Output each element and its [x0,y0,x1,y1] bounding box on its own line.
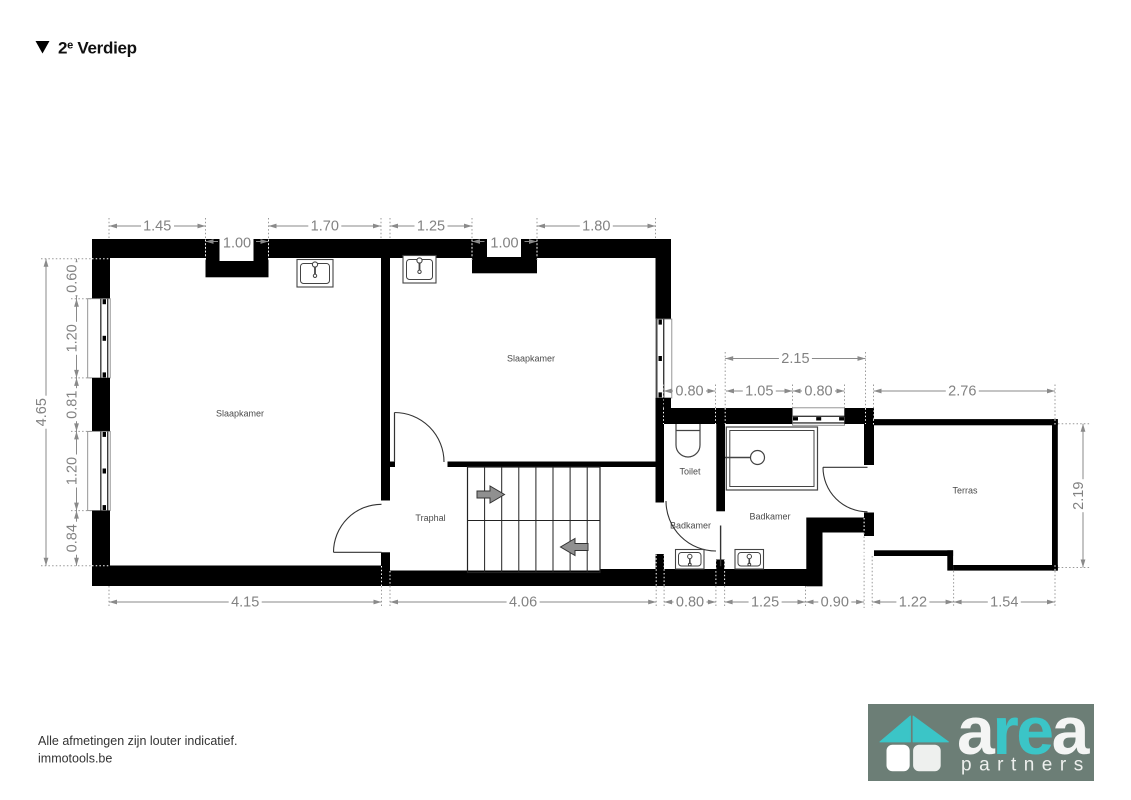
svg-text:0.80: 0.80 [676,595,704,611]
svg-text:2.76: 2.76 [948,384,976,400]
svg-text:Toilet: Toilet [679,467,701,477]
svg-text:4.65: 4.65 [34,398,50,426]
svg-text:0.80: 0.80 [675,384,703,400]
svg-text:1.05: 1.05 [745,384,773,400]
svg-text:immotools.be: immotools.be [38,752,112,766]
svg-text:0.60: 0.60 [65,265,81,293]
svg-text:0.80: 0.80 [804,384,832,400]
svg-text:1.20: 1.20 [65,324,81,352]
svg-text:1.25: 1.25 [417,219,445,235]
svg-text:1.00: 1.00 [223,236,251,252]
svg-text:Slaapkamer: Slaapkamer [507,354,555,364]
svg-text:Badkamer: Badkamer [749,512,790,522]
svg-text:1.80: 1.80 [582,219,610,235]
svg-text:4.15: 4.15 [231,595,259,611]
svg-text:Traphal: Traphal [415,513,445,523]
svg-text:Terras: Terras [952,486,978,496]
svg-text:1.45: 1.45 [143,219,171,235]
svg-text:1.54: 1.54 [990,595,1018,611]
svg-text:1.00: 1.00 [490,236,518,252]
svg-text:1.70: 1.70 [311,219,339,235]
svg-text:1.25: 1.25 [751,595,779,611]
svg-text:4.06: 4.06 [509,595,537,611]
svg-text:0.90: 0.90 [821,595,849,611]
svg-text:Slaapkamer: Slaapkamer [216,409,264,419]
svg-text:2.15: 2.15 [781,351,809,367]
svg-text:Alle afmetingen zijn louter in: Alle afmetingen zijn louter indicatief. [38,734,237,748]
svg-text:0.81: 0.81 [65,391,81,419]
svg-text:partners: partners [961,755,1091,776]
svg-text:Badkamer: Badkamer [670,521,711,531]
svg-text:0.84: 0.84 [65,524,81,552]
svg-text:1.22: 1.22 [899,595,927,611]
svg-text:1.20: 1.20 [65,457,81,485]
svg-text:2.19: 2.19 [1071,482,1087,510]
